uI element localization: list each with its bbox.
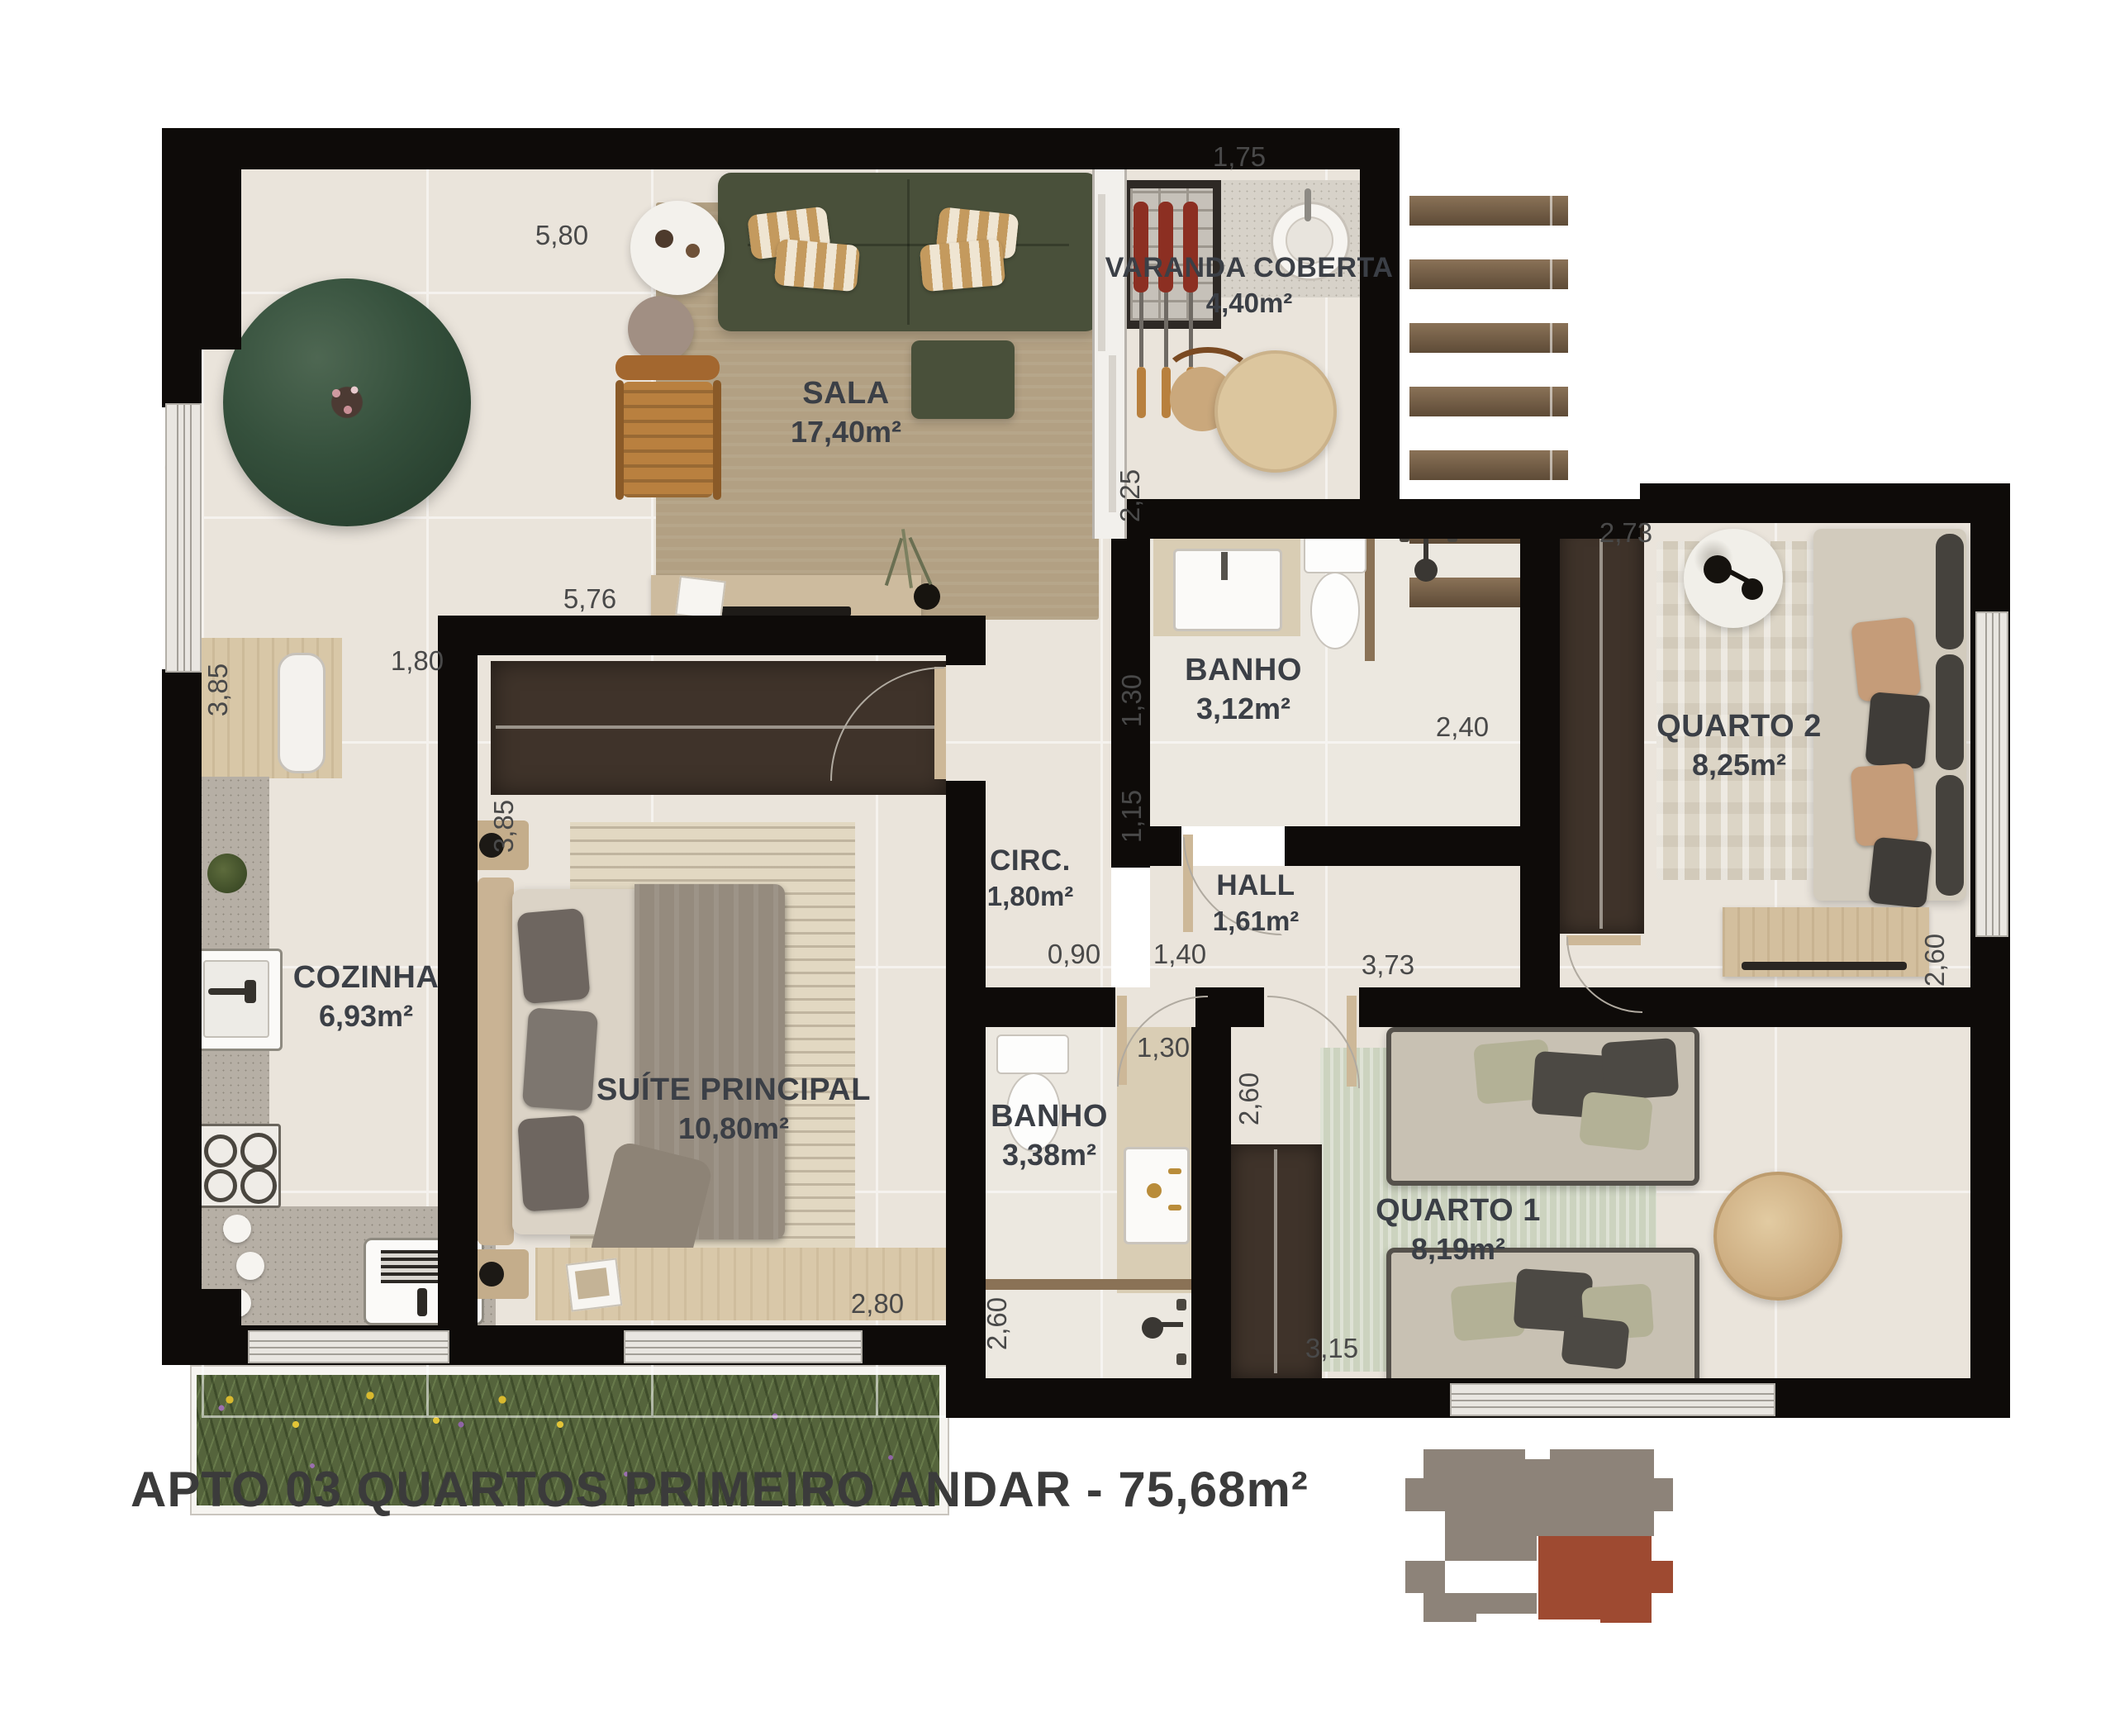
room-area: 4,40m²: [1105, 288, 1394, 319]
coffee-table-round: [628, 296, 694, 362]
room-name: QUARTO 1: [1376, 1193, 1541, 1229]
wall: [1520, 499, 1560, 866]
bed-pillow: [1851, 763, 1919, 846]
wall: [162, 669, 202, 1365]
room-label-varanda: VARANDA COBERTA 4,40m²: [1105, 252, 1394, 319]
stairs-icon: [1409, 450, 1568, 480]
room-label-suite: SUÍTE PRINCIPAL 10,80m²: [596, 1073, 871, 1146]
gold-faucet-icon: [1147, 1183, 1162, 1198]
wall: [1150, 826, 1181, 866]
dim-label: 3,73: [1362, 949, 1414, 981]
gold-handle-icon: [1168, 1205, 1181, 1210]
closet-rail: [1274, 1149, 1277, 1373]
skewer-handle-icon: [1137, 367, 1146, 418]
shower-head-icon: [1414, 559, 1438, 582]
key-gray-shape: [1476, 1593, 1537, 1614]
ottoman: [911, 340, 1015, 419]
bed-bolster: [1936, 775, 1964, 896]
key-gray-shape: [1405, 1561, 1445, 1593]
stairs-icon: [1409, 387, 1568, 416]
magazine-icon: [675, 576, 725, 621]
dim-label: 2,60: [1233, 1073, 1265, 1125]
gold-handle-icon: [1168, 1168, 1181, 1174]
burner-icon: [240, 1168, 277, 1204]
magazine-cover: [575, 1268, 610, 1299]
bench-object-icon: [1742, 962, 1907, 970]
window: [1975, 611, 2008, 937]
sofa-pillow: [920, 239, 1006, 293]
lamp-icon: [479, 1262, 504, 1287]
room-area: 1,80m²: [987, 881, 1074, 912]
shower-stem-icon: [1423, 535, 1428, 562]
dim-label: 3,85: [202, 663, 234, 716]
burner-icon: [204, 1169, 237, 1202]
dim-label: 1,15: [1116, 790, 1148, 843]
room-label-circ: CIRC. 1,80m²: [987, 844, 1074, 912]
room-name: BANHO: [991, 1099, 1108, 1134]
wall: [1520, 866, 1560, 987]
bed-pillow: [517, 1115, 590, 1211]
dim-label: 2,60: [981, 1297, 1013, 1350]
wall: [438, 655, 478, 1325]
burner-icon: [240, 1133, 277, 1169]
faucet-icon: [245, 980, 256, 1003]
quarto1-round-table: [1713, 1172, 1842, 1301]
magazine-icon: [566, 1258, 623, 1311]
dim-label: 2,40: [1436, 711, 1489, 743]
decor-circle-icon: [223, 1215, 251, 1243]
room-area: 8,25m²: [1656, 748, 1822, 782]
key-red-unit: [1652, 1561, 1673, 1593]
shower-head-icon: [1142, 1317, 1163, 1339]
dim-label: 3,15: [1305, 1333, 1358, 1364]
stairs-icon: [1409, 196, 1568, 226]
room-area: 3,38m²: [991, 1138, 1108, 1172]
bed-pillow: [1579, 1092, 1653, 1151]
wall: [1360, 128, 1400, 539]
dim-label: 2,25: [1115, 469, 1146, 522]
vase-plant-icon: [914, 583, 940, 610]
dim-label: 2,73: [1599, 517, 1652, 549]
wall: [1359, 987, 1970, 1027]
quarto1-bed-bottom: [1386, 1248, 1690, 1378]
toilet-icon: [996, 1034, 1069, 1074]
wall: [946, 987, 1115, 1027]
armchair-arm: [713, 380, 721, 500]
dim-label: 3,85: [488, 800, 520, 853]
dim-label: 5,76: [563, 583, 616, 615]
key-gray-shape: [1525, 1449, 1550, 1459]
toilet-icon: [1304, 535, 1366, 573]
room-area: 17,40m²: [791, 415, 901, 449]
room-name: CIRC.: [987, 844, 1074, 878]
wall: [438, 616, 986, 655]
wall: [162, 350, 202, 407]
shower-stem-icon: [1160, 1322, 1183, 1327]
counter-plant-icon: [207, 854, 247, 893]
dim-label: 5,80: [535, 220, 588, 251]
dim-label: 2,60: [1919, 934, 1951, 987]
room-area: 10,80m²: [596, 1111, 871, 1146]
side-table-bowl-icon: [686, 244, 700, 258]
room-label-quarto1: QUARTO 1 8,19m²: [1376, 1193, 1541, 1267]
bed-pillow: [1865, 692, 1930, 769]
room-label-cozinha: COZINHA 6,93m²: [293, 960, 440, 1034]
side-table-white: [630, 201, 725, 295]
dim-label: 1,75: [1213, 141, 1266, 173]
hook-icon: [1176, 1353, 1186, 1365]
decor-circle-icon: [236, 1252, 264, 1280]
varanda-table: [1214, 350, 1337, 473]
room-name: BANHO: [1185, 653, 1302, 688]
suite-bed: [478, 878, 791, 1245]
bed-pillow: [516, 908, 590, 1005]
sofa-split-line: [907, 179, 910, 325]
wall: [946, 655, 986, 665]
wall: [162, 1289, 241, 1365]
armchair-back: [615, 355, 720, 380]
kitchen-sink-basin: [203, 960, 269, 1038]
key-gray-shape: [1423, 1593, 1476, 1622]
quarto2-bed: [1813, 529, 1966, 901]
room-label-hall: HALL 1,61m²: [1213, 869, 1300, 937]
dim-label: 1,30: [1137, 1032, 1190, 1063]
room-label-sala: SALA 17,40m²: [791, 376, 901, 449]
quarto2-closet: [1560, 523, 1644, 934]
key-gray-shape: [1537, 1511, 1654, 1536]
dim-label: 0,90: [1048, 939, 1100, 970]
toilet-bowl-icon: [1310, 572, 1360, 649]
banho1-basin: [1173, 549, 1282, 631]
room-label-quarto2: QUARTO 2 8,25m²: [1656, 709, 1822, 782]
stairs-icon: [1409, 259, 1568, 289]
room-name: SUÍTE PRINCIPAL: [596, 1073, 871, 1108]
room-area: 1,61m²: [1213, 906, 1300, 937]
dim-label: 1,30: [1116, 674, 1148, 727]
window: [624, 1330, 863, 1363]
building-key-icon: [1390, 1446, 1688, 1636]
key-gray-shape: [1445, 1511, 1537, 1561]
room-label-banho2: BANHO 3,38m²: [991, 1099, 1108, 1172]
bed-bolster: [1936, 654, 1964, 770]
hook-icon: [1176, 1299, 1186, 1310]
bed-pillow: [1868, 837, 1932, 909]
fridge-handle: [417, 1288, 427, 1316]
key-red-unit: [1538, 1536, 1652, 1619]
room-name: HALL: [1213, 869, 1300, 902]
quarto1-bed-top: [1386, 1027, 1690, 1176]
dim-label: 2,80: [851, 1288, 904, 1320]
closet-rail: [1599, 528, 1603, 929]
faucet-icon: [1221, 552, 1228, 580]
marble-side-table: [1684, 529, 1783, 628]
key-red-unit: [1600, 1614, 1652, 1623]
faucet-icon: [1305, 188, 1311, 221]
bed-pillow: [522, 1007, 598, 1111]
window: [165, 403, 202, 673]
room-name: SALA: [791, 376, 901, 411]
page-title: APTO 03 QUARTOS PRIMEIRO ANDAR - 75,68m²: [131, 1461, 1309, 1518]
floor-suite-door-gap: [946, 665, 986, 781]
wood-armchair: [615, 355, 731, 512]
room-area: 3,12m²: [1185, 692, 1302, 726]
window: [248, 1330, 449, 1363]
planter-yellow-flowers-icon: [197, 1375, 585, 1449]
key-gray-shape: [1405, 1478, 1673, 1511]
room-name: COZINHA: [293, 960, 440, 996]
shower-divider: [986, 1279, 1191, 1290]
room-name: QUARTO 2: [1656, 709, 1822, 744]
sofa: [718, 171, 1099, 336]
armchair-seat: [622, 382, 713, 497]
window: [1450, 1383, 1775, 1416]
sofa-pillow: [774, 239, 861, 293]
bed-pillow: [1601, 1038, 1680, 1101]
stove-icon: [193, 1124, 281, 1208]
bed-pillow: [1561, 1315, 1630, 1370]
dish-rack-icon: [278, 653, 326, 773]
room-name: VARANDA COBERTA: [1105, 252, 1394, 284]
armchair-arm: [615, 380, 624, 500]
floor-plan: SALA 17,40m² VARANDA COBERTA 4,40m² COZI…: [0, 0, 2115, 1736]
burner-icon: [204, 1134, 237, 1168]
room-area: 8,19m²: [1376, 1232, 1541, 1267]
bed-headboard: [478, 878, 514, 1245]
wall: [946, 781, 986, 1418]
wall: [162, 128, 241, 350]
room-area: 6,93m²: [293, 999, 440, 1034]
bed-bolster: [1936, 534, 1964, 649]
room-label-banho1: BANHO 3,12m²: [1185, 653, 1302, 726]
dim-label: 1,40: [1153, 939, 1206, 970]
dim-label: 1,80: [391, 645, 444, 677]
side-table-bowl-icon: [655, 230, 673, 248]
stairs-icon: [1409, 323, 1568, 353]
table-centerpiece-flowers-icon: [318, 373, 376, 431]
bed-pillow: [1851, 616, 1922, 702]
wall: [1285, 826, 1520, 866]
wall: [1640, 483, 2010, 523]
